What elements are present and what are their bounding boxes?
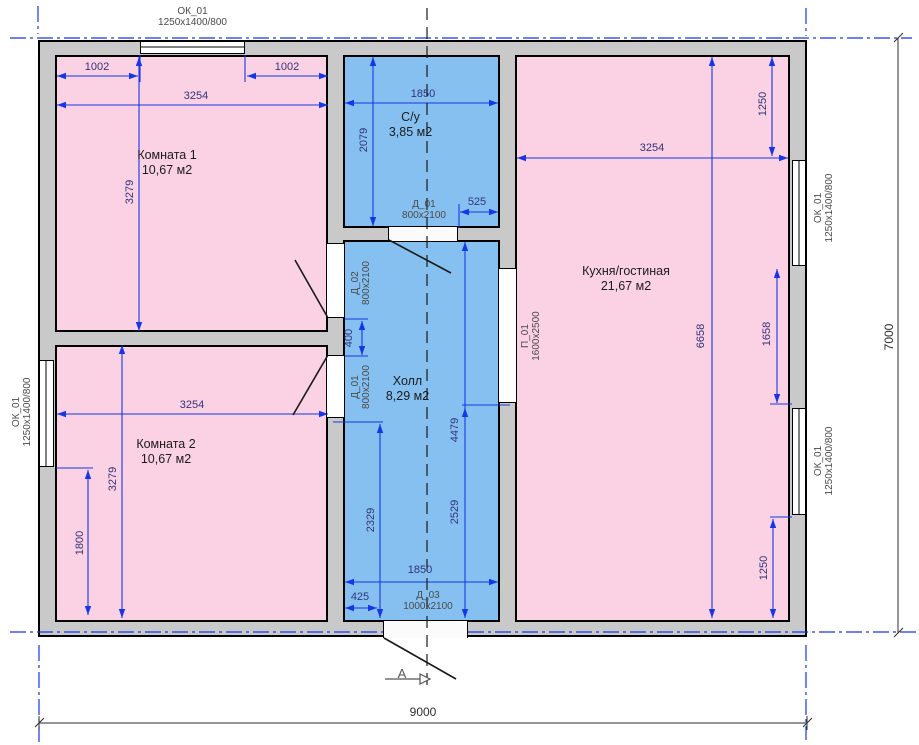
door-d03-label: Д_03 1000x2100	[388, 590, 468, 612]
dim-hall-right-lower: 2529	[447, 487, 463, 537]
door-size: 1000x2100	[388, 601, 468, 612]
door-size: 800x2100	[361, 261, 372, 305]
dim-hall-lower-left: 2329	[363, 495, 379, 545]
dim-kitchen-win-bottom: 1250	[756, 543, 772, 593]
door-size: 800x2100	[361, 365, 372, 409]
room1-name: Комната 1	[107, 148, 227, 163]
window-size: 1250x1400/800	[140, 17, 245, 28]
section-marker-a: А	[392, 666, 412, 681]
hall-label: Холл 8,29 м2	[365, 374, 450, 404]
dim-hall-width: 1850	[395, 564, 445, 576]
room2-name: Комната 2	[106, 437, 226, 452]
window-tag: ОК_01	[813, 193, 824, 223]
wc-name: С/у	[368, 110, 453, 125]
dim-kitchen-width: 3254	[627, 142, 677, 154]
kitchen-name: Кухня/гостиная	[556, 264, 696, 279]
window-left-label: ОК_01 1250x1400/800	[7, 357, 37, 467]
door-tag: Д_03	[388, 590, 468, 601]
dim-hall-door-offset: 425	[335, 591, 385, 603]
window-tag: ОК_01	[11, 397, 22, 427]
window-tag: ОК_01	[140, 6, 245, 17]
dim-overall-width: 9000	[393, 705, 453, 719]
dim-wc-width: 1850	[398, 88, 448, 100]
kitchen-label: Кухня/гостиная 21,67 м2	[556, 264, 696, 294]
passage-size: 1600x2500	[531, 311, 542, 361]
dim-room2-width: 3254	[167, 399, 217, 411]
dim-room1-seg-right: 1002	[262, 61, 312, 73]
dim-wc-height: 2079	[356, 115, 372, 165]
door-tag: Д_02	[350, 271, 361, 294]
dim-room2-height: 3279	[105, 454, 121, 504]
door-tag: Д_01	[350, 375, 361, 398]
window-size: 1250x1400/800	[824, 427, 835, 496]
window-top-label: ОК_01 1250x1400/800	[140, 6, 245, 28]
dim-kitchen-height: 6658	[693, 311, 709, 361]
floor-plan: Комната 1 10,67 м2 Комната 2 10,67 м2 С/…	[0, 0, 919, 745]
passage-p01-label: П_01 1600x2500	[516, 281, 546, 391]
door-size: 800x2100	[384, 210, 464, 221]
dim-room2-win-offset: 1800	[72, 518, 88, 568]
room2-area: 10,67 м2	[106, 452, 226, 467]
dim-room1-height: 3279	[122, 167, 138, 217]
window-tag: ОК_01	[813, 446, 824, 476]
window-right-upper-label: ОК_01 1250x1400/800	[809, 153, 839, 263]
window-right-lower-label: ОК_01 1250x1400/800	[809, 406, 839, 516]
dim-wc-door-offset: 525	[452, 196, 502, 208]
window-size: 1250x1400/800	[22, 378, 33, 447]
dim-room1-width: 3254	[171, 90, 221, 102]
dim-overall-height: 7000	[881, 307, 897, 367]
hall-name: Холл	[365, 374, 450, 389]
dim-kitchen-win-mid: 1658	[759, 309, 775, 359]
dim-hall-pier: 400	[341, 313, 357, 363]
kitchen-area: 21,67 м2	[556, 279, 696, 294]
window-size: 1250x1400/800	[824, 174, 835, 243]
room2-label: Комната 2 10,67 м2	[106, 437, 226, 467]
dim-kitchen-win-top: 1250	[755, 79, 771, 129]
passage-tag: П_01	[520, 324, 531, 348]
dim-room1-seg-left: 1002	[72, 61, 122, 73]
hall-area: 8,29 м2	[365, 389, 450, 404]
dim-hall-right-upper: 4479	[447, 405, 463, 455]
wc-area: 3,85 м2	[368, 125, 453, 140]
line-work-layer	[0, 0, 919, 745]
wc-label: С/у 3,85 м2	[368, 110, 453, 140]
